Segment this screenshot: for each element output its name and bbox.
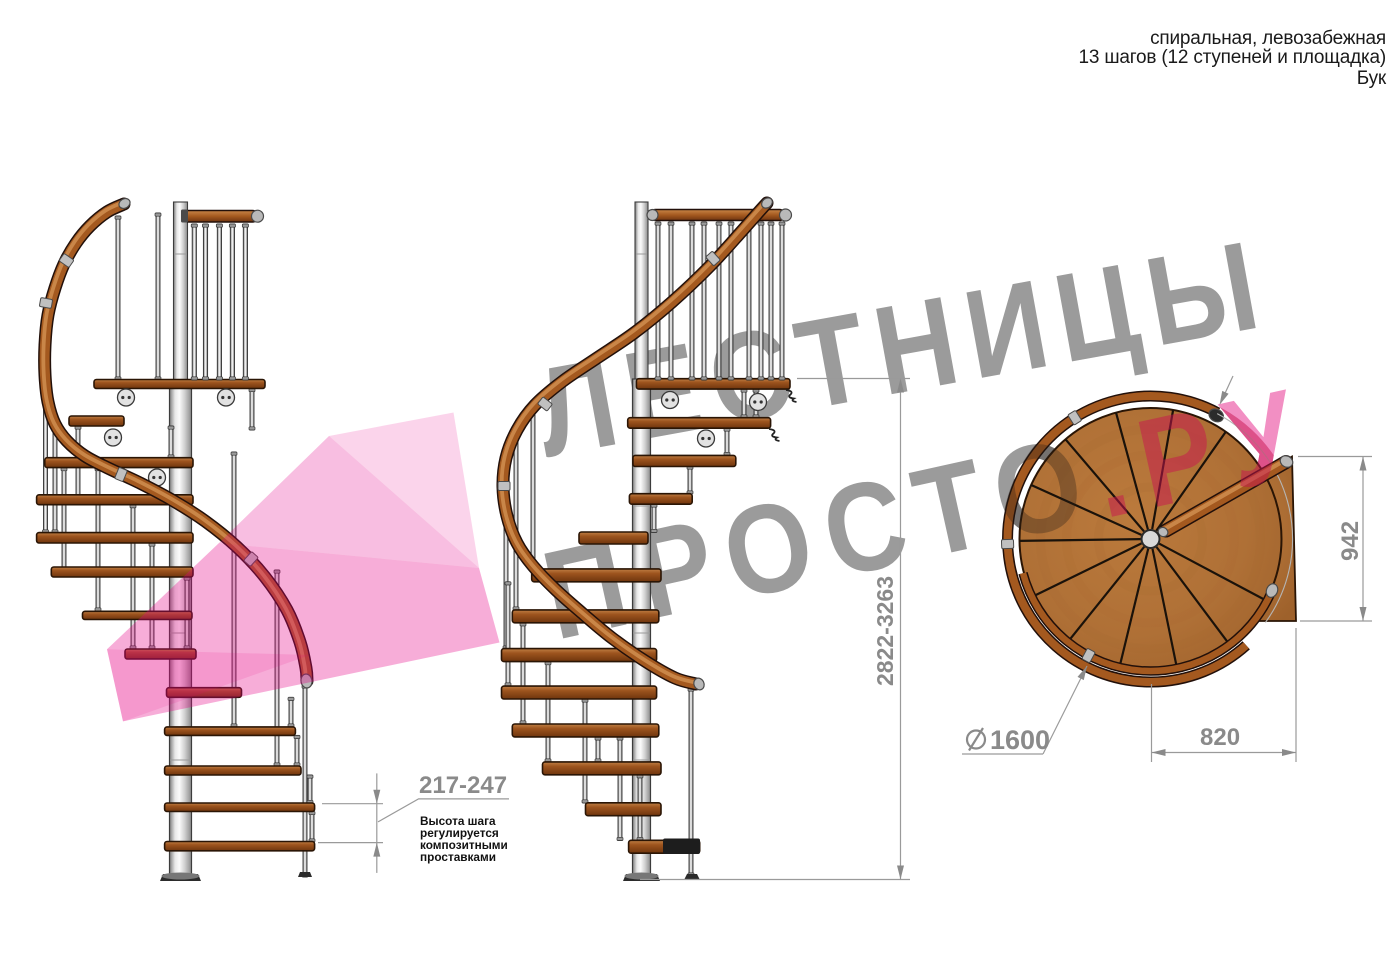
svg-text:проставками: проставками — [420, 850, 496, 864]
svg-text:2822-3263: 2822-3263 — [872, 576, 898, 686]
svg-text:217-247: 217-247 — [419, 772, 507, 799]
svg-text:Бук: Бук — [1357, 68, 1387, 89]
svg-text:942: 942 — [1337, 521, 1364, 561]
svg-text:спиральная, левозабежная: спиральная, левозабежная — [1150, 28, 1386, 49]
svg-text:1600: 1600 — [990, 725, 1050, 755]
svg-text:13 шагов (12 ступеней и площад: 13 шагов (12 ступеней и площадка) — [1079, 47, 1387, 68]
svg-text:820: 820 — [1200, 724, 1240, 751]
